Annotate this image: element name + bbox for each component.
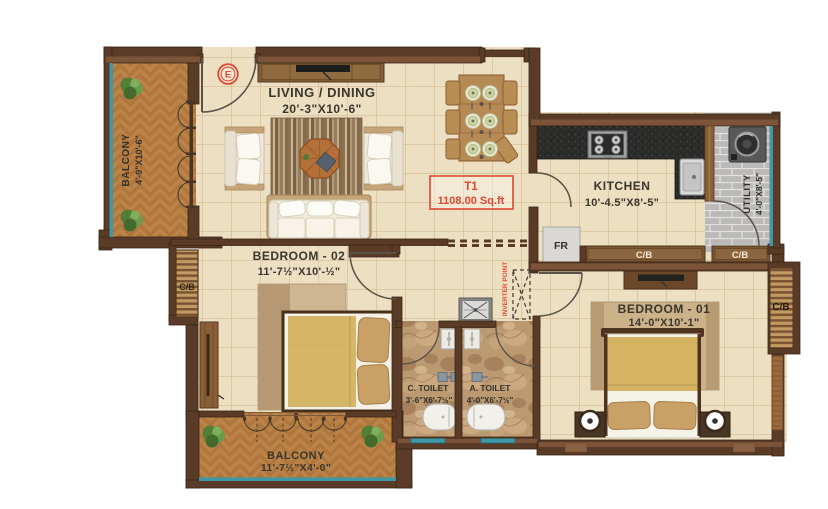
- svg-text:3'-6"X6'-7½": 3'-6"X6'-7½": [406, 396, 453, 405]
- svg-text:C/B: C/B: [179, 282, 195, 292]
- svg-text:BALCONY: BALCONY: [267, 450, 325, 462]
- svg-text:BEDROOM - 01: BEDROOM - 01: [618, 302, 711, 316]
- svg-text:C. TOILET: C. TOILET: [408, 383, 450, 393]
- svg-text:T1: T1: [464, 181, 478, 193]
- svg-text:10'-4.5"X8'-5": 10'-4.5"X8'-5": [585, 197, 659, 209]
- svg-text:C/B: C/B: [772, 302, 789, 313]
- svg-text:4'-9"X10'-6": 4'-9"X10'-6": [134, 135, 144, 185]
- svg-text:INVERTER POINT: INVERTER POINT: [502, 262, 509, 317]
- svg-text:11'-7½"X10'-½": 11'-7½"X10'-½": [258, 266, 341, 278]
- svg-text:A. TOILET: A. TOILET: [470, 383, 512, 393]
- svg-text:UTILITY: UTILITY: [742, 174, 753, 214]
- svg-text:4'-0"X8'-5": 4'-0"X8'-5": [754, 173, 764, 215]
- svg-text:BEDROOM - 02: BEDROOM - 02: [253, 249, 346, 263]
- svg-text:E: E: [225, 70, 231, 81]
- svg-text:C/B: C/B: [732, 250, 749, 261]
- svg-text:20'-3"X10'-6": 20'-3"X10'-6": [282, 102, 362, 116]
- svg-text:KITCHEN: KITCHEN: [594, 179, 651, 193]
- svg-text:BALCONY: BALCONY: [121, 134, 132, 187]
- svg-text:C/B: C/B: [636, 250, 653, 261]
- svg-text:14'-0"X10'-1": 14'-0"X10'-1": [629, 317, 700, 329]
- svg-text:11'-7½"X4'-0": 11'-7½"X4'-0": [261, 462, 331, 474]
- svg-text:1108.00 Sq.ft: 1108.00 Sq.ft: [438, 195, 505, 207]
- svg-text:FR: FR: [554, 240, 568, 252]
- svg-text:LIVING / DINING: LIVING / DINING: [268, 85, 375, 100]
- svg-text:4'-0"X6'-7½": 4'-0"X6'-7½": [467, 396, 514, 405]
